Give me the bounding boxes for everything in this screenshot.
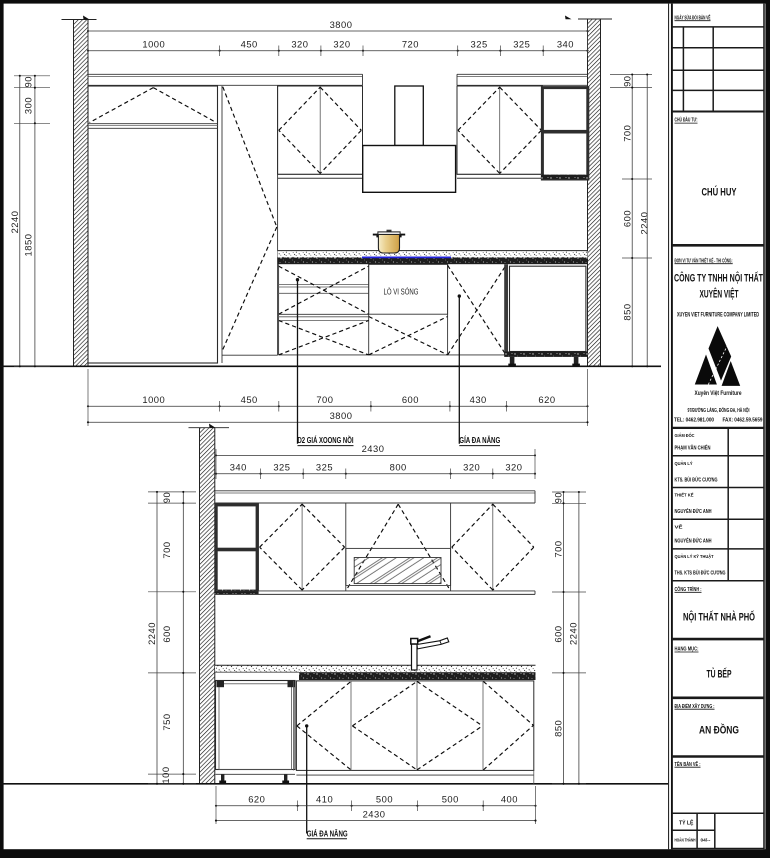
svg-text:500: 500 bbox=[442, 793, 459, 804]
svg-text:340: 340 bbox=[557, 38, 574, 49]
svg-text:620: 620 bbox=[538, 394, 555, 405]
svg-text:700: 700 bbox=[622, 125, 633, 142]
svg-text:TỶ LỆ: TỶ LỆ bbox=[679, 819, 694, 827]
svg-text:CHỦ ĐẦU TƯ:: CHỦ ĐẦU TƯ: bbox=[675, 117, 698, 124]
svg-text:325: 325 bbox=[316, 461, 333, 472]
svg-text:850: 850 bbox=[552, 720, 563, 737]
svg-text:620: 620 bbox=[248, 793, 265, 804]
svg-text:700: 700 bbox=[161, 541, 172, 558]
svg-text:TÊN BẢN VẼ :: TÊN BẢN VẼ : bbox=[675, 760, 701, 768]
svg-text:2240: 2240 bbox=[639, 212, 650, 235]
svg-text:320: 320 bbox=[463, 461, 480, 472]
svg-text:97/ĐƯỜNG LÁNG, ĐỐNG ĐA, HÀ NỘI: 97/ĐƯỜNG LÁNG, ĐỐNG ĐA, HÀ NỘI bbox=[688, 406, 750, 414]
svg-text:400: 400 bbox=[501, 793, 518, 804]
svg-text:500: 500 bbox=[376, 793, 393, 804]
svg-text:XUYEN VIET FURNITURE COMPANY L: XUYEN VIET FURNITURE COMPANY LIMITED bbox=[677, 311, 759, 318]
svg-text:XUYÊN VIỆT: XUYÊN VIỆT bbox=[700, 287, 739, 300]
svg-text:2430: 2430 bbox=[363, 808, 386, 819]
svg-text:850: 850 bbox=[622, 303, 633, 320]
svg-text:320: 320 bbox=[505, 461, 522, 472]
svg-text:HOÀN THÀNH: HOÀN THÀNH bbox=[675, 837, 696, 843]
svg-text:325: 325 bbox=[513, 38, 530, 49]
svg-text:90: 90 bbox=[23, 76, 34, 87]
svg-text:THIẾT KẾ: THIẾT KẾ bbox=[675, 492, 695, 499]
svg-text:3800: 3800 bbox=[330, 19, 353, 30]
svg-text:PHẠM VĂN CHIẾN: PHẠM VĂN CHIẾN bbox=[675, 445, 711, 452]
svg-text:2240: 2240 bbox=[9, 211, 20, 234]
svg-text:04/--: 04/-- bbox=[701, 838, 711, 844]
svg-text:CÔNG TY TNHH NỘI THẤT: CÔNG TY TNHH NỘI THẤT bbox=[674, 272, 763, 285]
svg-text:320: 320 bbox=[291, 38, 308, 49]
svg-text:NGÀY SỬA ĐỔI BẢN VẼ: NGÀY SỬA ĐỔI BẢN VẼ bbox=[675, 14, 711, 21]
svg-text:700: 700 bbox=[316, 394, 333, 405]
svg-text:KTS. BÙI ĐỨC CƯƠNG: KTS. BÙI ĐỨC CƯƠNG bbox=[675, 476, 718, 483]
svg-text:600: 600 bbox=[622, 210, 633, 227]
svg-text:NGUYỄN ĐỨC ANH: NGUYỄN ĐỨC ANH bbox=[675, 508, 712, 515]
svg-text:3800: 3800 bbox=[330, 410, 353, 421]
svg-text:320: 320 bbox=[333, 38, 350, 49]
svg-text:CHÚ HUY: CHÚ HUY bbox=[702, 185, 737, 198]
svg-text:90: 90 bbox=[552, 492, 563, 503]
svg-text:450: 450 bbox=[241, 394, 258, 405]
svg-text:AN ĐỒNG: AN ĐỒNG bbox=[699, 723, 739, 736]
svg-text:1850: 1850 bbox=[23, 234, 34, 257]
svg-text:700: 700 bbox=[552, 540, 563, 557]
svg-text:100: 100 bbox=[160, 766, 171, 783]
svg-text:VẼ: VẼ bbox=[675, 524, 684, 531]
svg-text:2430: 2430 bbox=[362, 443, 385, 454]
svg-text:GIÁM ĐỐC: GIÁM ĐỐC bbox=[675, 432, 695, 439]
svg-text:GÍA ĐA NĂNG: GÍA ĐA NĂNG bbox=[459, 436, 500, 445]
svg-text:600: 600 bbox=[161, 625, 172, 642]
svg-text:LÒ VI SÓNG: LÒ VI SÓNG bbox=[384, 287, 419, 297]
svg-text:THS. KTS BÙI ĐỨC CƯƠNG: THS. KTS BÙI ĐỨC CƯƠNG bbox=[675, 570, 726, 577]
svg-text:430: 430 bbox=[470, 394, 487, 405]
svg-text:325: 325 bbox=[273, 461, 290, 472]
svg-text:2240: 2240 bbox=[567, 622, 578, 645]
svg-text:FAX: 0462.59.5659: FAX: 0462.59.5659 bbox=[723, 417, 763, 423]
svg-text:Xuyên Việt Furniture: Xuyên Việt Furniture bbox=[695, 390, 742, 397]
svg-text:340: 340 bbox=[230, 461, 247, 472]
svg-text:600: 600 bbox=[552, 625, 563, 642]
svg-text:800: 800 bbox=[390, 461, 407, 472]
svg-text:2240: 2240 bbox=[146, 622, 157, 645]
svg-text:NGUYỄN ĐỨC ANH: NGUYỄN ĐỨC ANH bbox=[675, 538, 712, 545]
svg-text:600: 600 bbox=[402, 394, 419, 405]
svg-text:QUẢN LÝ KỸ THUẬT: QUẢN LÝ KỸ THUẬT bbox=[675, 553, 714, 560]
svg-text:450: 450 bbox=[241, 38, 258, 49]
svg-text:CÔNG TRÌNH :: CÔNG TRÌNH : bbox=[675, 585, 702, 593]
svg-text:410: 410 bbox=[316, 793, 333, 804]
svg-text:D2 GIÁ XOONG NỒI: D2 GIÁ XOONG NỒI bbox=[298, 435, 354, 445]
svg-text:720: 720 bbox=[402, 38, 419, 49]
svg-text:1000: 1000 bbox=[142, 38, 165, 49]
svg-text:QUẢN LÝ: QUẢN LÝ bbox=[675, 460, 694, 467]
svg-text:325: 325 bbox=[471, 38, 488, 49]
svg-text:TỦ BẾP: TỦ BẾP bbox=[707, 668, 732, 681]
svg-text:ĐỊA ĐIỂM XÂY DỰNG :: ĐỊA ĐIỂM XÂY DỰNG : bbox=[675, 703, 715, 710]
svg-text:90: 90 bbox=[622, 75, 633, 86]
svg-text:NỘI THẤT NHÀ PHỐ: NỘI THẤT NHÀ PHỐ bbox=[683, 609, 755, 623]
svg-text:TEL: 0462.981.000: TEL: 0462.981.000 bbox=[674, 417, 714, 423]
svg-text:1000: 1000 bbox=[142, 394, 165, 405]
svg-text:GIÁ ĐA NĂNG: GIÁ ĐA NĂNG bbox=[307, 830, 348, 839]
svg-text:750: 750 bbox=[161, 713, 172, 730]
svg-text:ĐƠN VỊ TƯ VẤN THIẾT KẾ - THI C: ĐƠN VỊ TƯ VẤN THIẾT KẾ - THI CÔNG: bbox=[675, 256, 733, 264]
svg-text:90: 90 bbox=[161, 492, 172, 503]
svg-text:300: 300 bbox=[23, 97, 34, 114]
